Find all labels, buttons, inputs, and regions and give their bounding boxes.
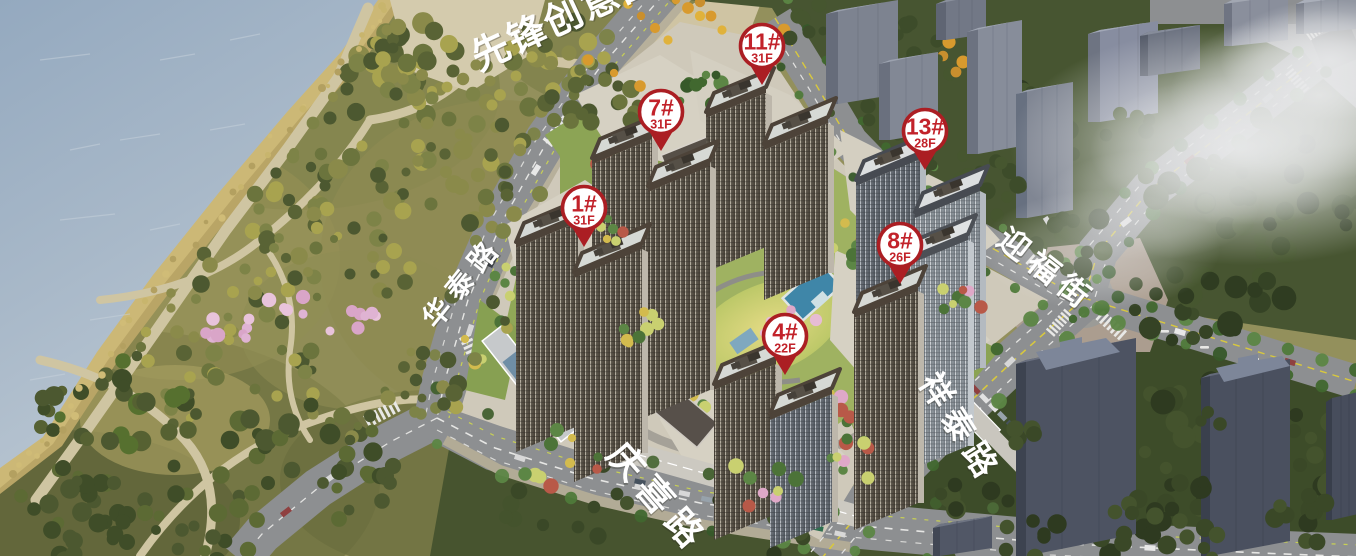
svg-text:31F: 31F: [650, 118, 672, 132]
svg-text:22F: 22F: [774, 342, 796, 356]
svg-text:31F: 31F: [751, 52, 773, 66]
svg-text:28F: 28F: [914, 137, 936, 151]
svg-text:31F: 31F: [573, 214, 595, 228]
svg-text:26F: 26F: [889, 251, 911, 265]
